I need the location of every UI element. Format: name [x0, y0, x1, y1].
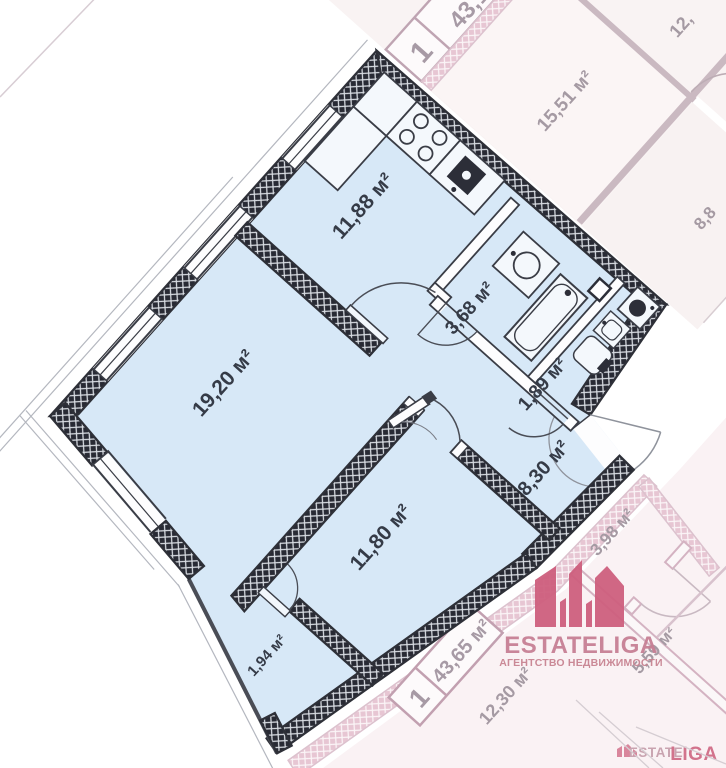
svg-text:LIGA: LIGA	[670, 744, 717, 765]
svg-text:АГЕНТСТВО НЕДВИЖИМОСТИ: АГЕНТСТВО НЕДВИЖИМОСТИ	[499, 657, 663, 669]
svg-text:ESTATELIGA: ESTATELIGA	[504, 632, 657, 659]
